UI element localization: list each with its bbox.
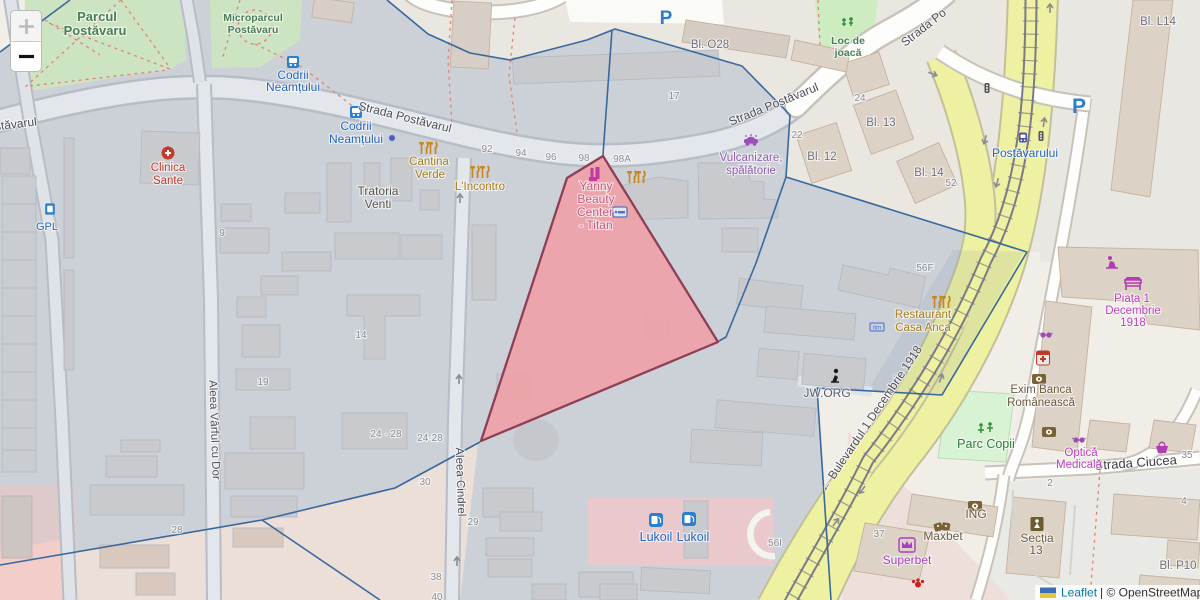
svg-text:56F: 56F [916,263,933,274]
svg-text:24: 24 [854,93,866,104]
svg-text:30: 30 [419,477,431,488]
svg-text:Bl. 12: Bl. 12 [807,151,836,163]
svg-text:Leaflet: Leaflet [1061,586,1098,600]
svg-text:56I: 56I [768,538,782,549]
svg-text:L'Incontro: L'Incontro [455,181,505,193]
svg-text:35: 35 [1181,450,1193,461]
svg-text:Tratoria: Tratoria [358,184,399,198]
svg-text:Bl. 13: Bl. 13 [866,117,895,129]
svg-text:Vulcanizare,: Vulcanizare, [720,152,783,164]
svg-text:98: 98 [578,153,590,164]
svg-text:ING: ING [965,507,986,521]
svg-text:24·28: 24·28 [417,433,443,444]
svg-text:98A: 98A [613,154,631,165]
svg-text:22: 22 [791,130,803,141]
svg-text:Postăvaru: Postăvaru [64,23,127,38]
svg-text:Cantina: Cantina [409,156,449,168]
svg-text:Bl. P10: Bl. P10 [1159,560,1196,572]
svg-text:96: 96 [545,152,557,163]
svg-text:Loc de: Loc de [831,35,865,47]
svg-text:Casa Anca: Casa Anca [895,322,951,334]
svg-text:4: 4 [1181,496,1187,507]
svg-text:Clinica: Clinica [151,162,186,174]
svg-text:P: P [1072,95,1086,118]
svg-text:Neamțului: Neamțului [329,132,383,146]
svg-text:19: 19 [257,377,269,388]
svg-text:92: 92 [481,144,493,155]
svg-text:29: 29 [467,517,479,528]
svg-text:Bl. 14: Bl. 14 [914,167,944,179]
svg-text:37: 37 [873,529,885,540]
svg-text:Piața 1: Piața 1 [1114,293,1150,305]
svg-text:Lukoil: Lukoil [677,530,710,544]
svg-text:38: 38 [430,572,442,583]
svg-text:Superbet: Superbet [883,553,932,567]
svg-text:Aleea Cindrel: Aleea Cindrel [453,447,467,516]
svg-text:Verde: Verde [415,169,445,181]
svg-text:2: 2 [1047,478,1053,489]
svg-text:Center: Center [577,205,613,219]
svg-text:Maxbet: Maxbet [923,529,963,543]
svg-text:Românească: Românească [1007,397,1075,409]
svg-text:14: 14 [355,330,367,341]
svg-text:joacă: joacă [834,47,862,59]
svg-text:Bl. L14: Bl. L14 [1140,16,1176,28]
svg-text:13: 13 [1029,543,1043,557]
svg-text:| © OpenStreetMap: | © OpenStreetMap [1100,586,1200,600]
svg-text:Yanny: Yanny [579,179,612,193]
svg-text:Medicală: Medicală [1056,459,1103,471]
svg-text:Parc Copii: Parc Copii [957,437,1015,451]
svg-text:Sante: Sante [153,175,183,187]
svg-text:52: 52 [945,178,957,189]
svg-text:Optică: Optică [1064,447,1098,459]
svg-text:Codrii: Codrii [340,119,371,133]
svg-text:Bl. O28: Bl. O28 [691,39,729,51]
svg-text:24 · 28: 24 · 28 [370,429,402,440]
svg-text:Restaurant: Restaurant [895,309,952,321]
svg-text:- Titan: - Titan [579,218,612,232]
svg-text:Postăvarului: Postăvarului [992,146,1058,160]
svg-text:Venti: Venti [365,197,392,211]
svg-text:P: P [660,8,673,29]
svg-text:GPL: GPL [36,221,58,233]
svg-text:Postăvaru: Postăvaru [228,24,279,36]
svg-text:40: 40 [431,592,443,600]
svg-text:Exim Banca: Exim Banca [1010,384,1072,396]
svg-text:28: 28 [171,525,183,536]
svg-text:Beauty: Beauty [577,192,614,206]
svg-text:9: 9 [219,228,225,239]
svg-text:Decembrie: Decembrie [1105,305,1161,317]
svg-text:itm: itm [873,326,881,332]
svg-text:1918: 1918 [1120,317,1146,329]
svg-text:spălătorie: spălătorie [726,165,776,177]
svg-text:Microparcul: Microparcul [223,12,283,24]
svg-text:Lukoil: Lukoil [640,530,673,544]
svg-text:17: 17 [668,91,680,102]
svg-text:94: 94 [515,148,527,159]
svg-text:JW.ORG: JW.ORG [803,386,850,400]
svg-text:Parcul: Parcul [77,9,117,24]
svg-text:Neamțului: Neamțului [266,80,320,94]
